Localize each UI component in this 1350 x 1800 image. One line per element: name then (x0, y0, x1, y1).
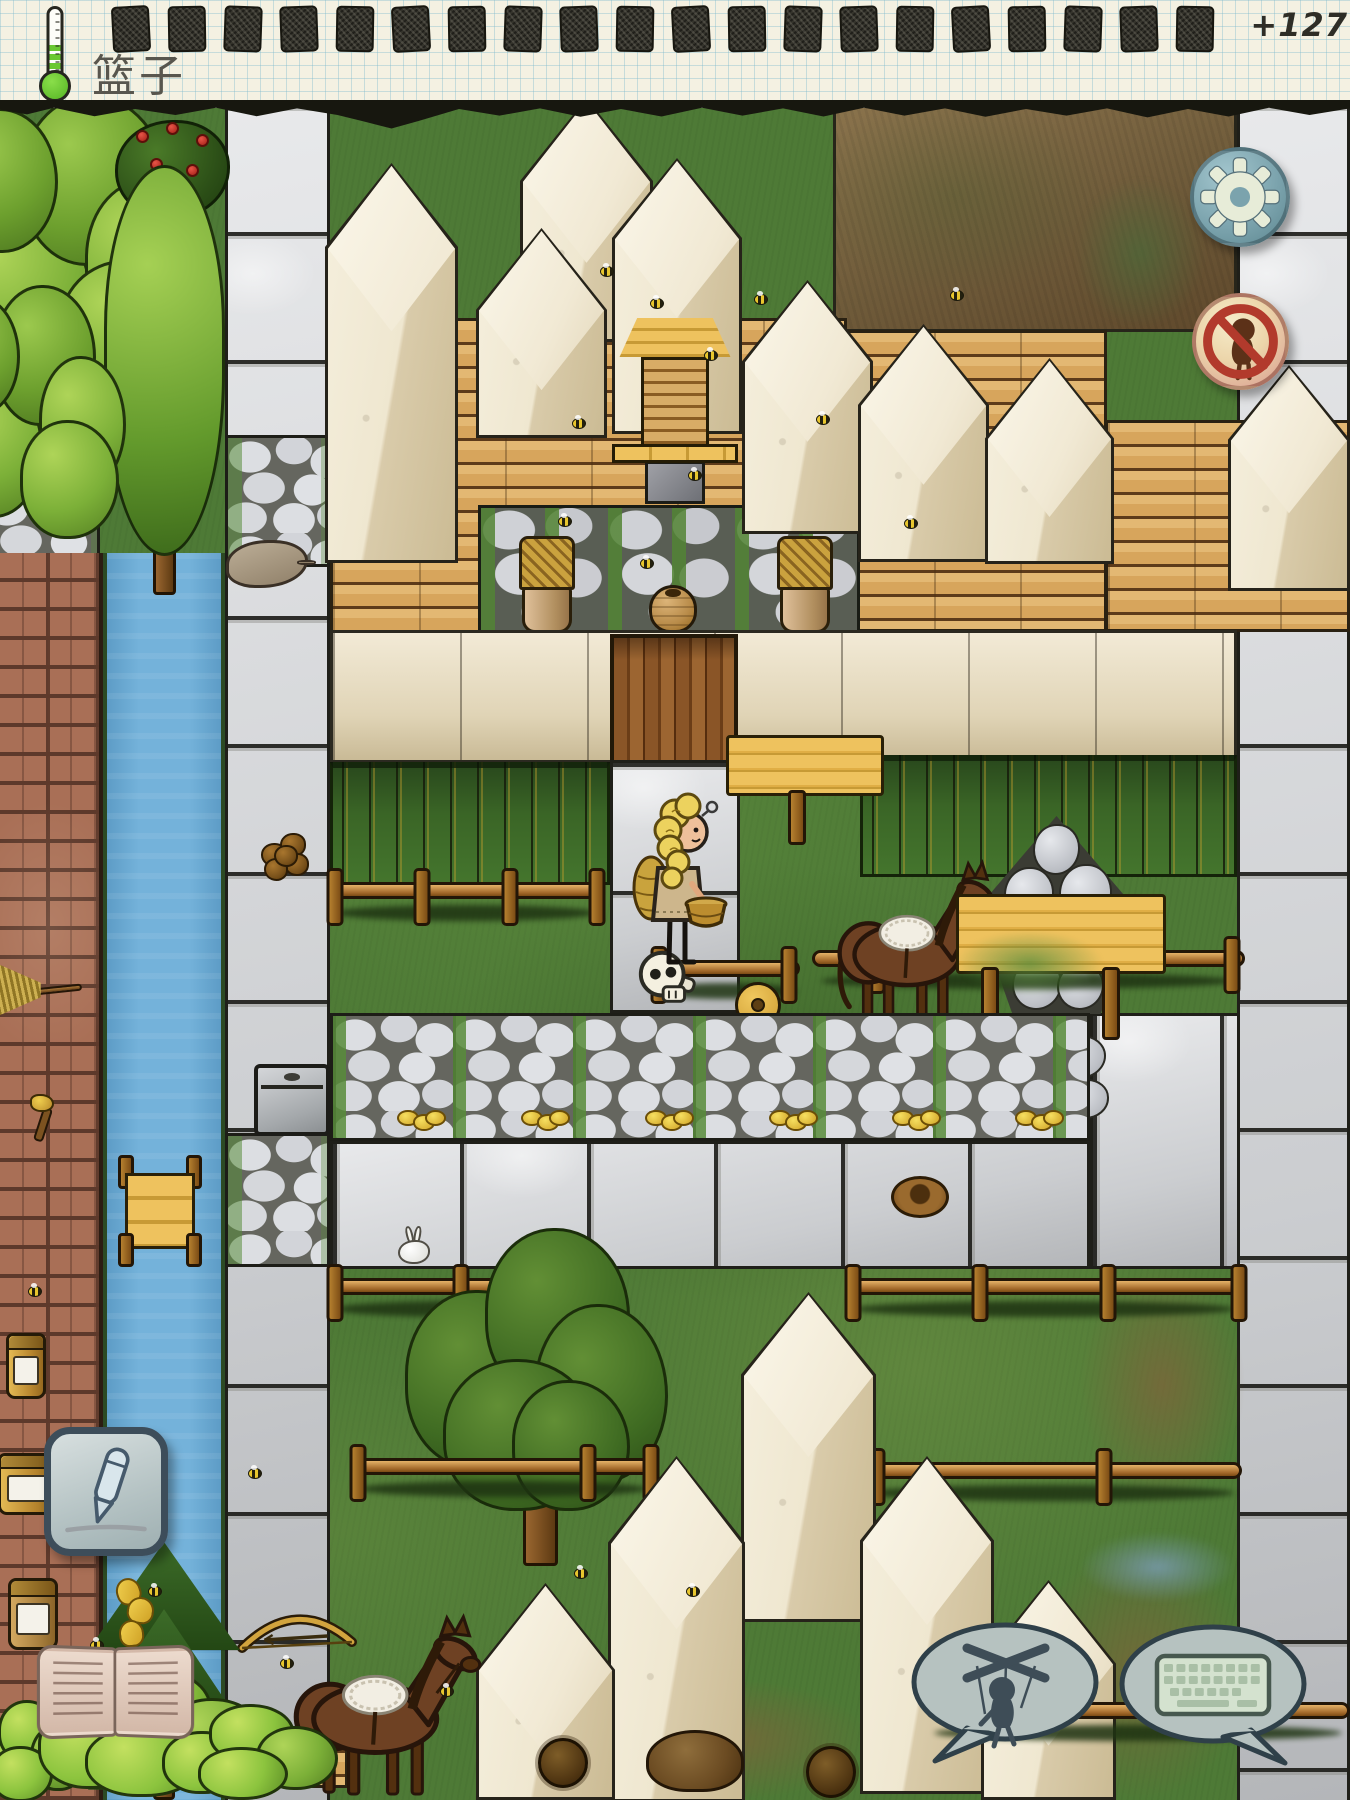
book-right-page (116, 1648, 190, 1737)
bee[interactable] (704, 350, 718, 361)
bee[interactable] (688, 470, 702, 481)
family-book-button[interactable] (40, 1645, 190, 1745)
food-pip (616, 6, 655, 53)
mute-speech-button[interactable] (905, 1618, 1105, 1768)
food-pip (728, 6, 767, 53)
food-pip (1008, 6, 1047, 53)
broom[interactable] (0, 962, 82, 1018)
axe[interactable] (20, 1094, 66, 1144)
bee[interactable] (686, 1586, 700, 1597)
nutpile[interactable] (256, 826, 316, 884)
tree-round[interactable] (0, 280, 130, 550)
coins[interactable] (645, 1110, 693, 1134)
sign[interactable] (726, 735, 884, 845)
no-baby-icon (1196, 297, 1285, 386)
keyboard-chat-button[interactable] (1113, 1620, 1313, 1770)
prism (741, 1292, 876, 1622)
top-hud: 篮子 +127 (0, 0, 1350, 108)
game-screen: 篮子 +127 (0, 0, 1350, 1800)
bee[interactable] (28, 1286, 42, 1297)
prism (985, 358, 1114, 564)
food-pip (279, 5, 319, 52)
food-pip (1119, 5, 1159, 52)
food-pip (783, 5, 823, 52)
pen-icon (51, 1434, 161, 1549)
book-left-page (40, 1648, 114, 1737)
coins[interactable] (521, 1110, 569, 1134)
bee[interactable] (574, 1568, 588, 1579)
prism (858, 324, 989, 562)
prism (742, 280, 873, 534)
burr[interactable] (806, 1746, 856, 1798)
food-pip (1063, 5, 1103, 52)
bee[interactable] (558, 516, 572, 527)
food-pip (896, 6, 935, 53)
gear-icon (1194, 151, 1286, 243)
cobble (225, 1133, 330, 1267)
food-pip (448, 6, 487, 53)
bee[interactable] (950, 290, 964, 301)
puddle-green (1075, 178, 1205, 328)
food-pips (112, 6, 1232, 58)
jar[interactable] (6, 1333, 46, 1399)
prism (1228, 365, 1350, 591)
prism (476, 228, 607, 438)
basketpot[interactable] (777, 536, 833, 633)
bee[interactable] (640, 558, 654, 569)
dock[interactable] (116, 1155, 204, 1267)
food-pip (671, 5, 711, 53)
food-pip (839, 5, 879, 52)
food-pip (1176, 6, 1215, 53)
food-pip (559, 5, 599, 52)
settings-button[interactable] (1190, 147, 1290, 247)
thermometer-icon (30, 4, 80, 104)
bee[interactable] (248, 1468, 262, 1479)
nest[interactable] (891, 1176, 949, 1218)
marionette-icon (905, 1618, 1105, 1768)
bee[interactable] (148, 1586, 162, 1597)
coins[interactable] (892, 1110, 940, 1134)
mound[interactable] (646, 1730, 744, 1792)
no-children-button[interactable] (1192, 293, 1289, 390)
food-pip (503, 5, 543, 52)
lady[interactable] (628, 792, 728, 972)
bee[interactable] (650, 298, 664, 309)
bee[interactable] (440, 1686, 454, 1697)
food-pip (951, 5, 991, 53)
road-col (225, 104, 330, 1800)
score-label: +127 (1250, 6, 1348, 44)
fence (845, 1264, 1243, 1348)
bee[interactable] (572, 418, 586, 429)
food-pip (223, 5, 263, 52)
bee[interactable] (600, 266, 614, 277)
fence (330, 868, 602, 950)
bee[interactable] (904, 518, 918, 529)
basketpot[interactable] (519, 536, 575, 633)
food-pip (391, 5, 431, 53)
jar-honey[interactable] (8, 1578, 58, 1650)
prism (325, 163, 458, 563)
box[interactable] (254, 1064, 330, 1136)
coins[interactable] (1015, 1110, 1063, 1134)
bee[interactable] (816, 414, 830, 425)
held-item-label: 篮子 (92, 40, 186, 104)
amphora[interactable] (649, 585, 697, 633)
door[interactable] (610, 634, 738, 764)
game-world[interactable] (0, 0, 1350, 1800)
keyboard-icon (1113, 1620, 1313, 1770)
crops[interactable] (330, 762, 610, 885)
burr[interactable] (538, 1738, 588, 1788)
hive[interactable] (612, 318, 738, 504)
bunny[interactable] (393, 1226, 435, 1266)
bee[interactable] (280, 1658, 294, 1669)
food-pip (336, 6, 375, 53)
coins[interactable] (769, 1110, 817, 1134)
bee[interactable] (754, 294, 768, 305)
draw-button[interactable] (44, 1427, 168, 1556)
coins[interactable] (397, 1110, 445, 1134)
